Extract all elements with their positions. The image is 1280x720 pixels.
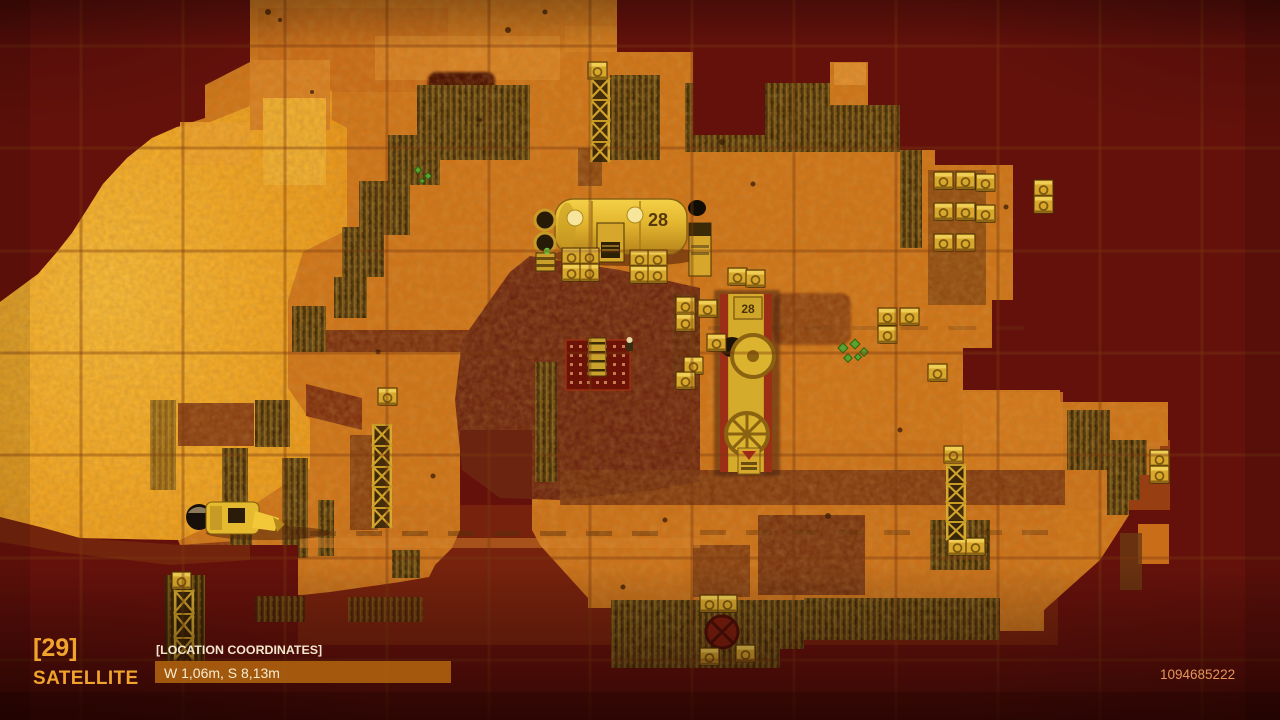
svg-text:W 1,06m, S 8,13m: W 1,06m, S 8,13m [164,665,280,681]
svg-text:[29]: [29] [33,634,77,662]
svg-text:28: 28 [741,302,755,316]
svg-text:SATELLITE: SATELLITE [33,668,139,689]
svg-text:28: 28 [648,210,668,230]
svg-text:1094685222: 1094685222 [1160,667,1235,682]
svg-text:[LOCATION COORDINATES]: [LOCATION COORDINATES] [156,643,322,657]
